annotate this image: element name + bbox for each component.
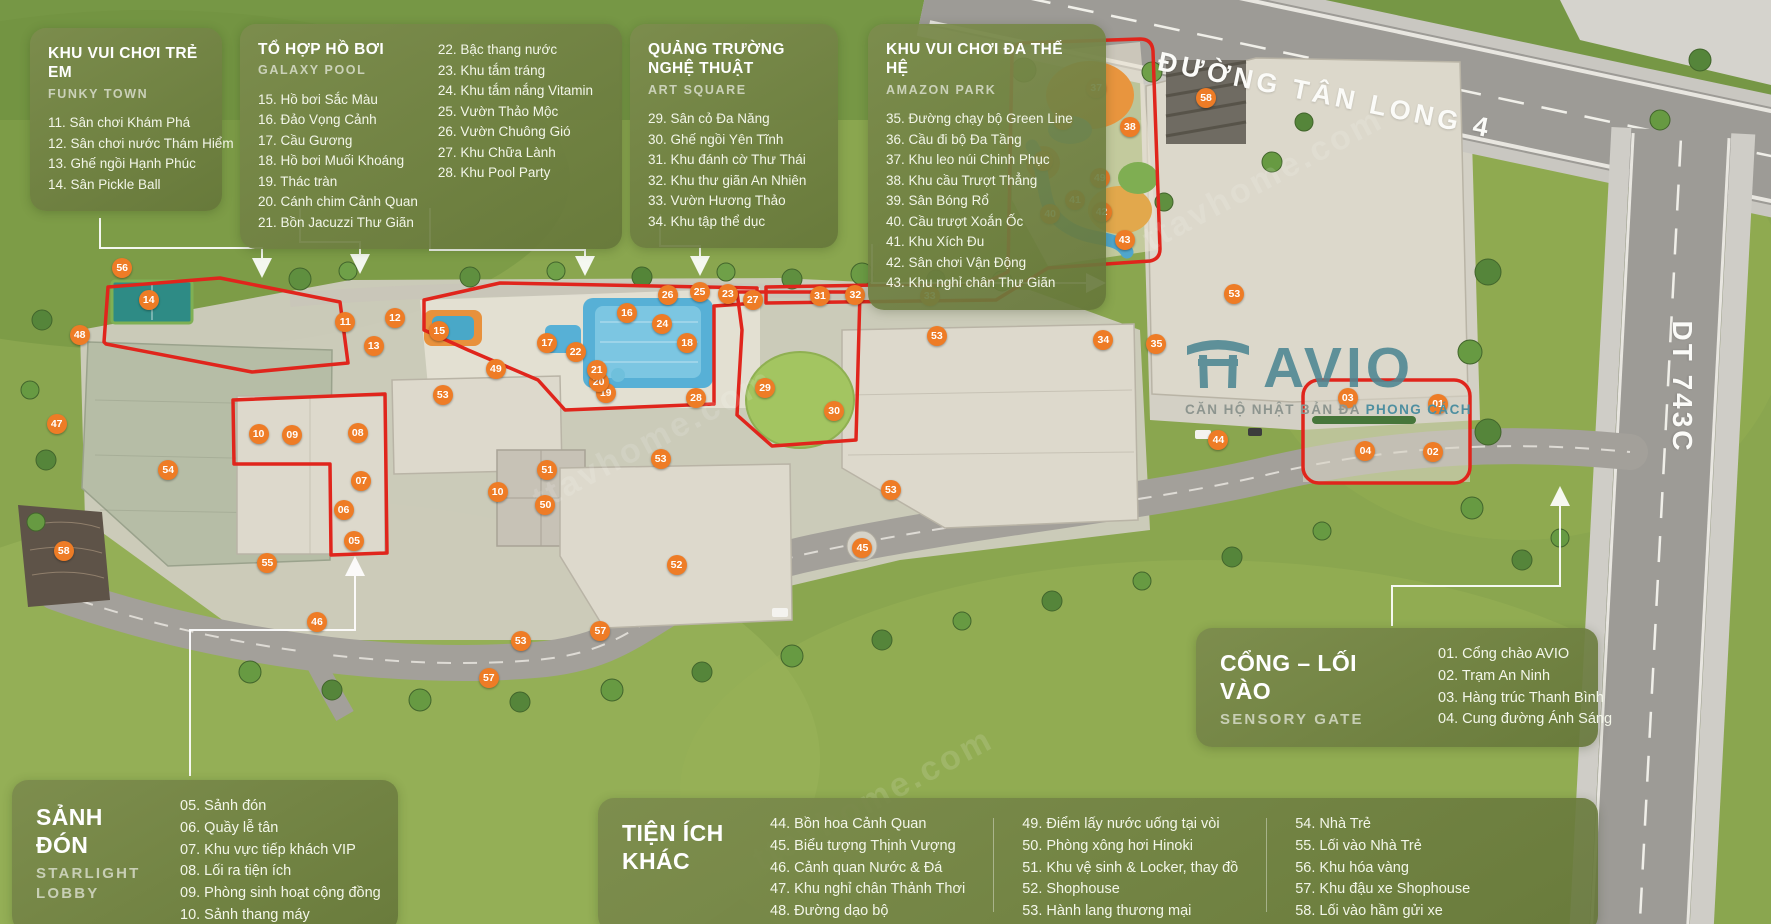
legend-item: 26. Vườn Chuông Gió bbox=[438, 122, 593, 143]
map-marker-34: 34 bbox=[1093, 330, 1113, 350]
legend-item: 35. Đường chạy bộ Green Line bbox=[886, 109, 1088, 130]
legend-item: 01. Cổng chào AVIO bbox=[1438, 644, 1612, 666]
map-marker-04: 04 bbox=[1355, 441, 1375, 461]
legend-items: 29. Sân cỏ Đa Năng30. Ghế ngồi Yên Tĩnh3… bbox=[648, 109, 820, 232]
legend-item: 50. Phòng xông hơi Hinoki bbox=[1022, 836, 1238, 858]
legend-title: TIỆN ÍCH KHÁC bbox=[622, 820, 744, 875]
tagline-part2: PHONG CÁCH bbox=[1366, 402, 1472, 417]
logo-tagline: CĂN HỘ NHẬT BẢN ĐA PHONG CÁCH bbox=[1185, 402, 1465, 417]
legend-items: 49. Điểm lấy nước uống tại vòi50. Phòng … bbox=[1022, 814, 1238, 923]
map-marker-10: 10 bbox=[488, 482, 508, 502]
legend-item: 11. Sân chơi Khám Phá bbox=[48, 113, 204, 134]
map-marker-38: 38 bbox=[1120, 117, 1140, 137]
legend-title: CỔNG – LỐI VÀO bbox=[1220, 650, 1412, 705]
legend-item: 28. Khu Pool Party bbox=[438, 163, 593, 184]
legend-item: 44. Bồn hoa Cảnh Quan bbox=[770, 814, 965, 836]
legend-items: 54. Nhà Trẻ55. Lối vào Nhà Trẻ56. Khu hó… bbox=[1295, 814, 1470, 923]
legend-item: 37. Khu leo núi Chinh Phục bbox=[886, 150, 1088, 171]
legend-item: 19. Thác tràn bbox=[258, 172, 418, 193]
legend-item: 49. Điểm lấy nước uống tại vòi bbox=[1022, 814, 1238, 836]
map-marker-47: 47 bbox=[47, 414, 67, 434]
legend-item: 31. Khu đánh cờ Thư Thái bbox=[648, 150, 820, 171]
legend-amazon-park: KHU VUI CHƠI ĐA THẾ HỆ AMAZON PARK 35. Đ… bbox=[868, 24, 1106, 310]
legend-item: 54. Nhà Trẻ bbox=[1295, 814, 1470, 836]
legend-item: 55. Lối vào Nhà Trẻ bbox=[1295, 836, 1470, 858]
legend-item: 03. Hàng trúc Thanh Bình bbox=[1438, 688, 1612, 710]
map-marker-52: 52 bbox=[667, 555, 687, 575]
column-divider bbox=[1266, 818, 1267, 912]
map-marker-10: 10 bbox=[249, 424, 269, 444]
map-marker-43: 43 bbox=[1115, 230, 1135, 250]
map-marker-09: 09 bbox=[282, 425, 302, 445]
legend-item: 33. Vườn Hương Thảo bbox=[648, 191, 820, 212]
map-marker-30: 30 bbox=[824, 401, 844, 421]
legend-item: 38. Khu cầu Trượt Thẳng bbox=[886, 171, 1088, 192]
legend-item: 53. Hành lang thương mại bbox=[1022, 901, 1238, 923]
map-marker-56: 56 bbox=[112, 258, 132, 278]
legend-item: 39. Sân Bóng Rổ bbox=[886, 191, 1088, 212]
legend-title: SẢNH ĐÓN bbox=[36, 804, 154, 859]
map-marker-18: 18 bbox=[677, 333, 697, 353]
legend-subtitle: SENSORY GATE bbox=[1220, 710, 1412, 730]
legend-item: 41. Khu Xích Đu bbox=[886, 232, 1088, 253]
map-marker-08: 08 bbox=[348, 423, 368, 443]
legend-item: 29. Sân cỏ Đa Năng bbox=[648, 109, 820, 130]
legend-items: 22. Bậc thang nước23. Khu tắm tráng24. K… bbox=[438, 40, 593, 184]
map-marker-05: 05 bbox=[344, 531, 364, 551]
map-marker-17: 17 bbox=[537, 333, 557, 353]
map-marker-53: 53 bbox=[651, 449, 671, 469]
map-marker-21: 21 bbox=[587, 360, 607, 380]
map-marker-51: 51 bbox=[537, 460, 557, 480]
legend-subtitle: ART SQUARE bbox=[648, 82, 820, 98]
legend-item: 43. Khu nghỉ chân Thư Giãn bbox=[886, 273, 1088, 294]
legend-item: 58. Lối vào hầm gửi xe bbox=[1295, 901, 1470, 923]
legend-item: 48. Đường dạo bộ bbox=[770, 901, 965, 923]
legend-item: 52. Shophouse bbox=[1022, 879, 1238, 901]
tagline-part1: CĂN HỘ NHẬT BẢN ĐA bbox=[1185, 402, 1360, 417]
legend-item: 10. Sảnh thang máy bbox=[180, 905, 381, 924]
map-marker-07: 07 bbox=[351, 471, 371, 491]
legend-sensory-gate: CỔNG – LỐI VÀO SENSORY GATE 01. Cổng chà… bbox=[1196, 628, 1598, 747]
map-marker-49: 49 bbox=[486, 359, 506, 379]
legend-items: 15. Hồ bơi Sắc Màu16. Đảo Vọng Cảnh17. C… bbox=[258, 90, 418, 234]
legend-subtitle: AMAZON PARK bbox=[886, 82, 1088, 98]
legend-items: 35. Đường chạy bộ Green Line36. Cầu đi b… bbox=[886, 109, 1088, 294]
legend-starlight-lobby: SẢNH ĐÓN STARLIGHT LOBBY 05. Sảnh đón06.… bbox=[12, 780, 398, 924]
legend-item: 02. Trạm An Ninh bbox=[1438, 666, 1612, 688]
map-marker-35: 35 bbox=[1146, 334, 1166, 354]
legend-item: 51. Khu vệ sinh & Locker, thay đồ bbox=[1022, 858, 1238, 880]
map-marker-06: 06 bbox=[334, 500, 354, 520]
legend-item: 18. Hồ bơi Muối Khoáng bbox=[258, 151, 418, 172]
map-marker-02: 02 bbox=[1423, 442, 1443, 462]
legend-item: 22. Bậc thang nước bbox=[438, 40, 593, 61]
map-marker-15: 15 bbox=[429, 321, 449, 341]
legend-item: 56. Khu hóa vàng bbox=[1295, 858, 1470, 880]
legend-funky-town: KHU VUI CHƠI TRẺ EM FUNKY TOWN 11. Sân c… bbox=[30, 28, 222, 211]
map-marker-11: 11 bbox=[335, 312, 355, 332]
map-marker-14: 14 bbox=[139, 290, 159, 310]
map-marker-23: 23 bbox=[718, 284, 738, 304]
legend-items: 05. Sảnh đón06. Quầy lễ tân07. Khu vực t… bbox=[180, 796, 381, 924]
legend-item: 20. Cánh chim Cảnh Quan bbox=[258, 192, 418, 213]
legend-item: 47. Khu nghỉ chân Thảnh Thơi bbox=[770, 879, 965, 901]
legend-item: 17. Cầu Gương bbox=[258, 131, 418, 152]
legend-item: 09. Phòng sinh hoạt cộng đồng bbox=[180, 883, 381, 905]
map-marker-45: 45 bbox=[852, 538, 872, 558]
legend-item: 24. Khu tắm nắng Vitamin bbox=[438, 81, 593, 102]
legend-subtitle: STARLIGHT LOBBY bbox=[36, 864, 154, 905]
legend-title: TỔ HỢP HỒ BƠI bbox=[258, 40, 418, 59]
legend-item: 27. Khu Chữa Lành bbox=[438, 143, 593, 164]
map-marker-53: 53 bbox=[1224, 284, 1244, 304]
legend-item: 14. Sân Pickle Ball bbox=[48, 175, 204, 196]
map-marker-57: 57 bbox=[590, 621, 610, 641]
legend-item: 04. Cung đường Ánh Sáng bbox=[1438, 709, 1612, 731]
map-marker-58: 58 bbox=[54, 541, 74, 561]
map-marker-53: 53 bbox=[511, 631, 531, 651]
legend-item: 30. Ghế ngồi Yên Tĩnh bbox=[648, 130, 820, 151]
map-marker-26: 26 bbox=[658, 285, 678, 305]
map-marker-55: 55 bbox=[257, 553, 277, 573]
legend-items: 44. Bồn hoa Cảnh Quan45. Biểu tượng Thịn… bbox=[770, 814, 965, 923]
legend-title: KHU VUI CHƠI TRẺ EM bbox=[48, 44, 204, 83]
site-plan: ttavhome.com ttavhome.com ttavhome.com Đ… bbox=[0, 0, 1771, 924]
torii-gate-icon bbox=[1185, 330, 1251, 393]
legend-item: 32. Khu thư giãn An Nhiên bbox=[648, 171, 820, 192]
map-marker-57: 57 bbox=[479, 668, 499, 688]
map-marker-16: 16 bbox=[617, 303, 637, 323]
map-marker-53: 53 bbox=[927, 326, 947, 346]
map-marker-48: 48 bbox=[70, 325, 90, 345]
map-marker-25: 25 bbox=[690, 282, 710, 302]
map-marker-53: 53 bbox=[433, 385, 453, 405]
legend-item: 16. Đảo Vọng Cảnh bbox=[258, 110, 418, 131]
legend-item: 05. Sảnh đón bbox=[180, 796, 381, 818]
map-marker-53: 53 bbox=[881, 480, 901, 500]
legend-item: 23. Khu tắm tráng bbox=[438, 61, 593, 82]
legend-other-amenities: TIỆN ÍCH KHÁC 44. Bồn hoa Cảnh Quan45. B… bbox=[598, 798, 1598, 924]
legend-item: 34. Khu tập thể dục bbox=[648, 212, 820, 233]
legend-subtitle: FUNKY TOWN bbox=[48, 86, 204, 102]
legend-item: 40. Cầu trượt Xoắn Ốc bbox=[886, 212, 1088, 233]
legend-item: 57. Khu đậu xe Shophouse bbox=[1295, 879, 1470, 901]
map-marker-29: 29 bbox=[755, 378, 775, 398]
legend-item: 06. Quầy lễ tân bbox=[180, 818, 381, 840]
legend-items: 01. Cổng chào AVIO02. Trạm An Ninh03. Hà… bbox=[1438, 644, 1612, 731]
map-marker-13: 13 bbox=[364, 336, 384, 356]
legend-item: 08. Lối ra tiện ích bbox=[180, 861, 381, 883]
legend-title: KHU VUI CHƠI ĐA THẾ HỆ bbox=[886, 40, 1088, 79]
map-marker-31: 31 bbox=[810, 286, 830, 306]
map-marker-12: 12 bbox=[385, 308, 405, 328]
legend-item: 15. Hồ bơi Sắc Màu bbox=[258, 90, 418, 111]
map-marker-28: 28 bbox=[686, 388, 706, 408]
legend-item: 21. Bồn Jacuzzi Thư Giãn bbox=[258, 213, 418, 234]
legend-title: QUẢNG TRƯỜNG NGHỆ THUẬT bbox=[648, 40, 820, 79]
legend-item: 07. Khu vực tiếp khách VIP bbox=[180, 840, 381, 862]
map-marker-50: 50 bbox=[535, 495, 555, 515]
legend-subtitle: GALAXY POOL bbox=[258, 62, 418, 78]
avio-logo: AVIO CĂN HỘ NHẬT BẢN ĐA PHONG CÁCH bbox=[1185, 330, 1465, 417]
legend-item: 25. Vườn Thảo Mộc bbox=[438, 102, 593, 123]
legend-item: 12. Sân chơi nước Thám Hiểm bbox=[48, 134, 204, 155]
column-divider bbox=[993, 818, 994, 912]
legend-item: 46. Cảnh quan Nước & Đá bbox=[770, 858, 965, 880]
map-marker-54: 54 bbox=[158, 460, 178, 480]
legend-galaxy-pool: TỔ HỢP HỒ BƠI GALAXY POOL 15. Hồ bơi Sắc… bbox=[240, 24, 622, 249]
map-marker-46: 46 bbox=[307, 612, 327, 632]
legend-items: 11. Sân chơi Khám Phá12. Sân chơi nước T… bbox=[48, 113, 204, 195]
logo-wordmark: AVIO bbox=[1263, 343, 1414, 393]
map-marker-27: 27 bbox=[743, 290, 763, 310]
legend-item: 13. Ghế ngồi Hạnh Phúc bbox=[48, 154, 204, 175]
map-marker-24: 24 bbox=[652, 314, 672, 334]
legend-item: 45. Biểu tượng Thịnh Vượng bbox=[770, 836, 965, 858]
map-marker-22: 22 bbox=[566, 342, 586, 362]
map-marker-32: 32 bbox=[845, 285, 865, 305]
legend-art-square: QUẢNG TRƯỜNG NGHỆ THUẬT ART SQUARE 29. S… bbox=[630, 24, 838, 248]
map-marker-44: 44 bbox=[1208, 430, 1228, 450]
map-marker-58: 58 bbox=[1196, 88, 1216, 108]
legend-item: 36. Cầu đi bộ Đa Tầng bbox=[886, 130, 1088, 151]
legend-item: 42. Sân chơi Vận Động bbox=[886, 253, 1088, 274]
